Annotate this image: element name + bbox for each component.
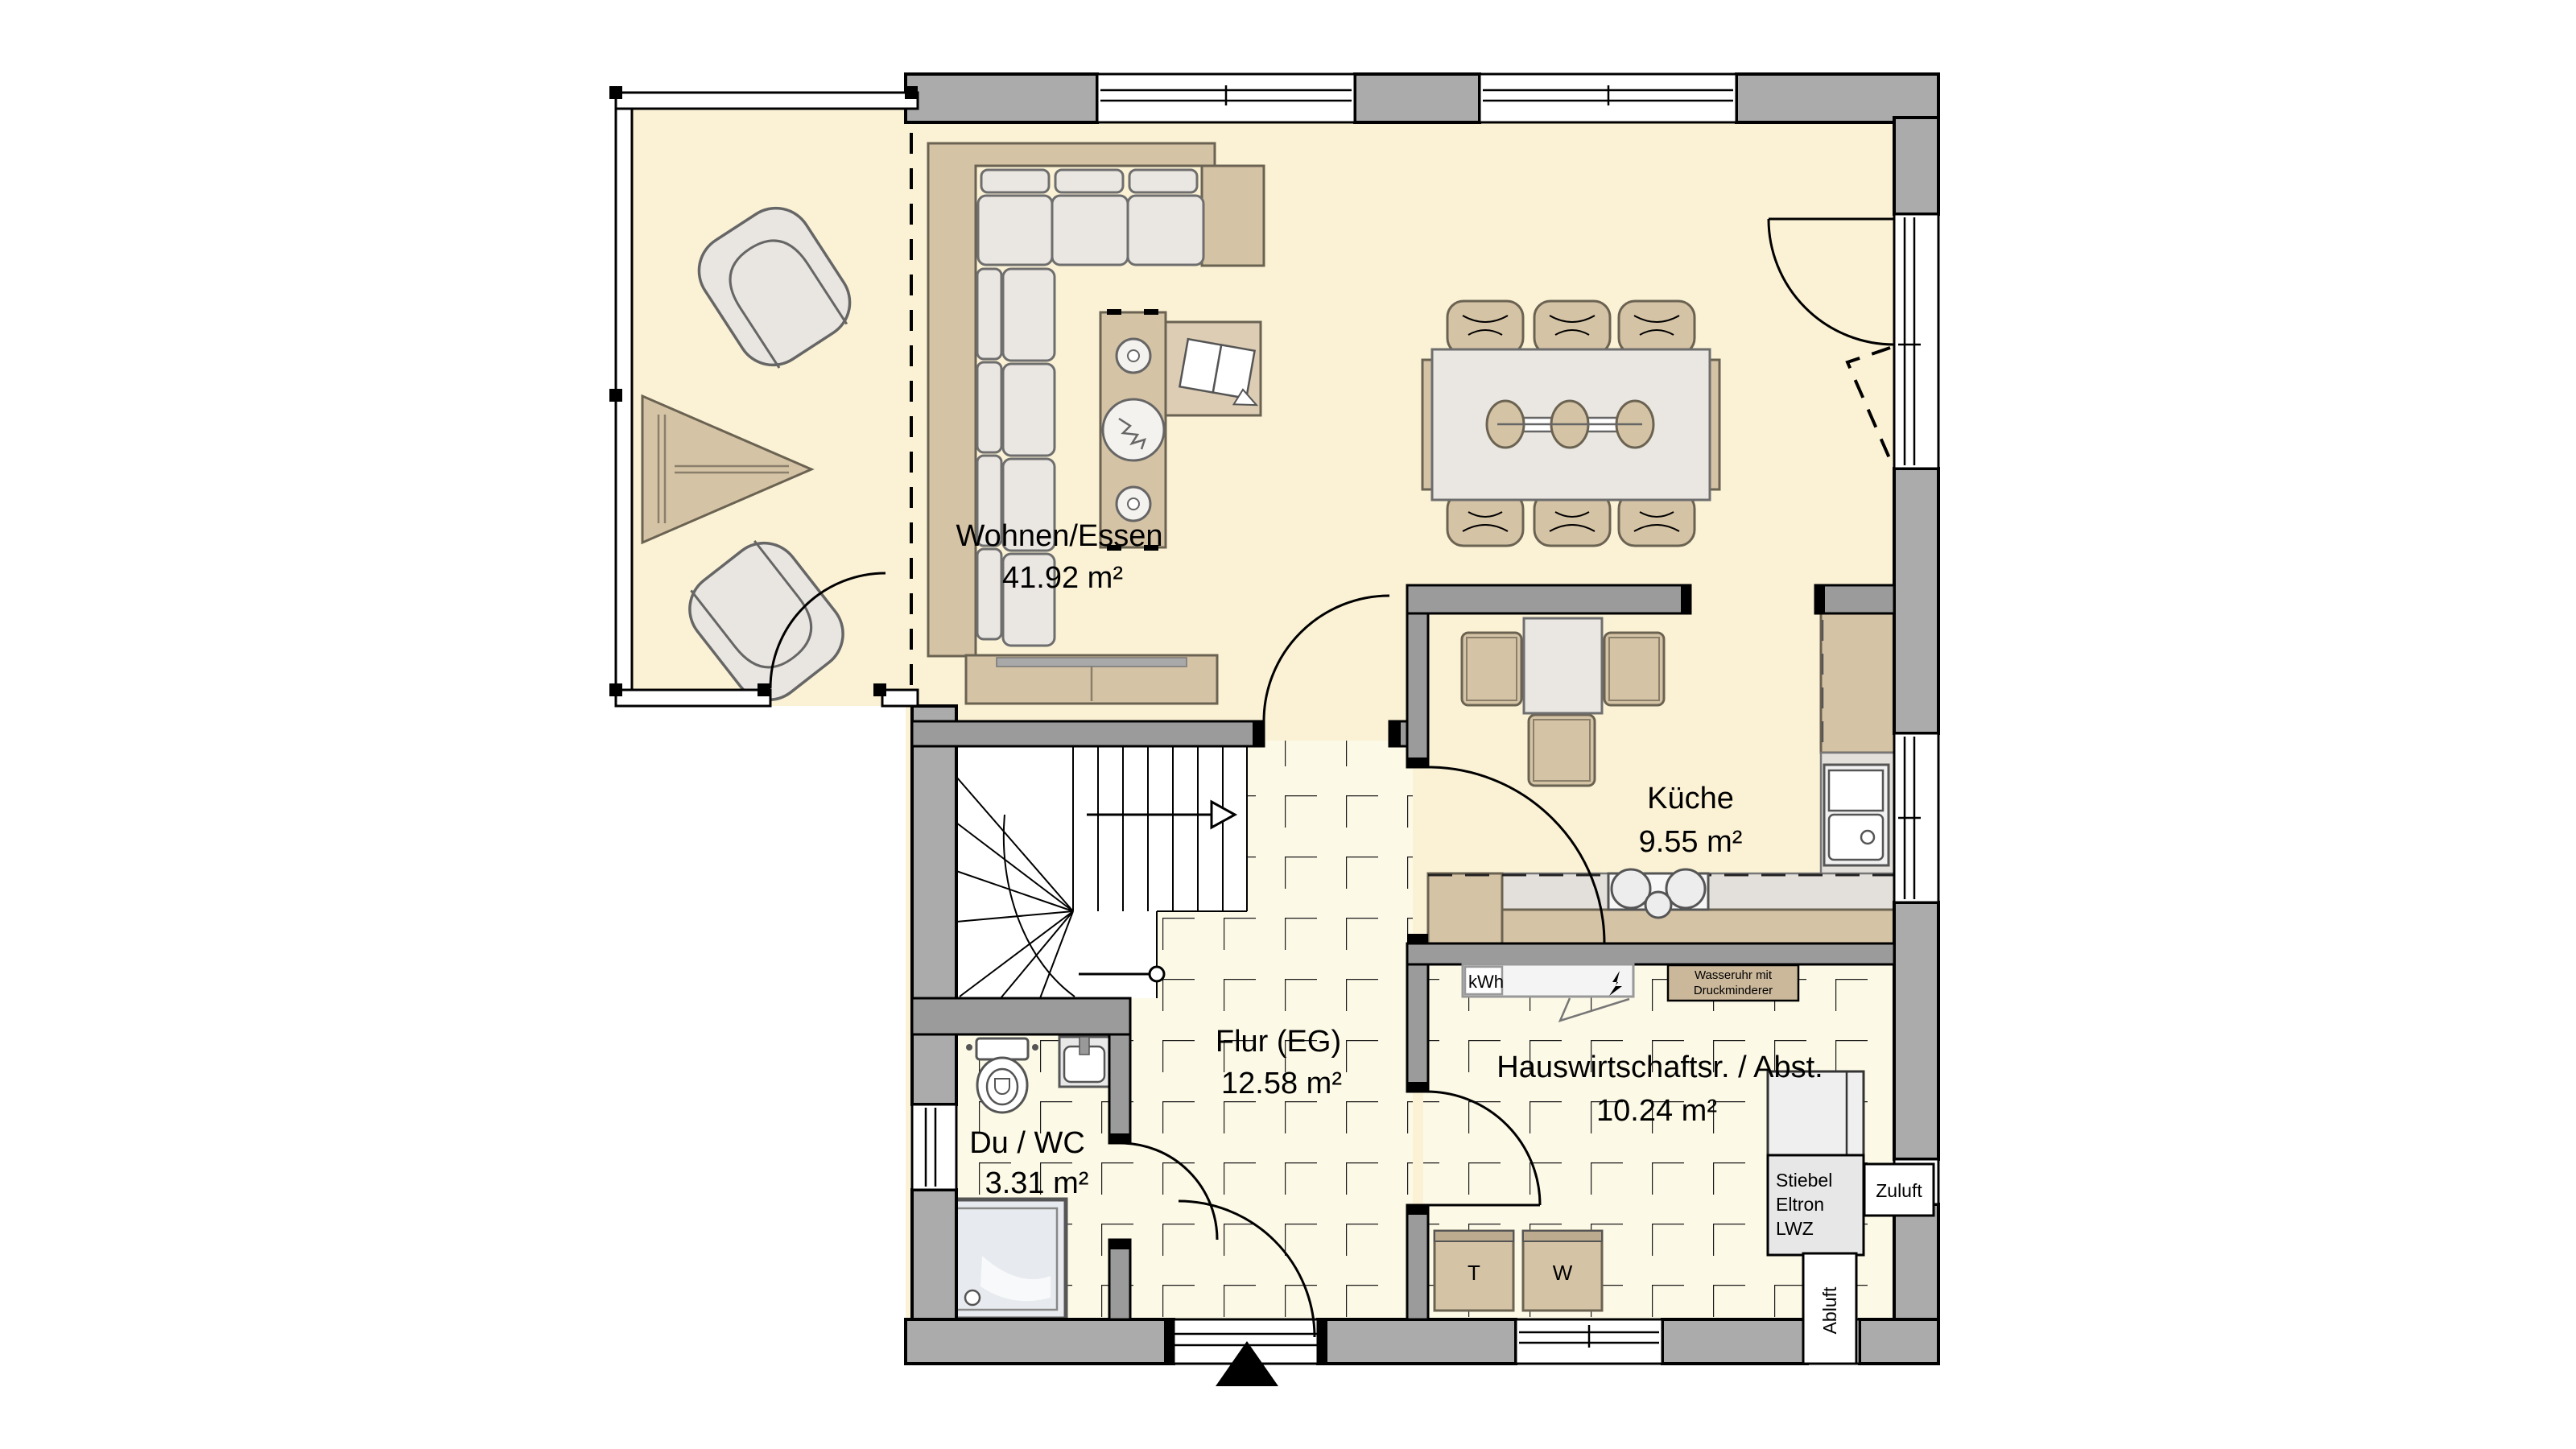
abluft-label: Abluft <box>1819 1286 1840 1334</box>
kitchen-chair <box>1529 715 1595 786</box>
sofa-back-cushion <box>977 269 1001 359</box>
room-label-flur: Flur (EG) <box>1216 1025 1341 1059</box>
floor-plan-canvas: kWh Wasseruhr mit Druckminderer Zuluft A… <box>0 0 2576 1449</box>
kitchen-chair <box>1604 633 1664 705</box>
kitchen-table <box>1524 618 1602 713</box>
sofa-seat <box>1003 269 1055 361</box>
sofa-seat <box>1052 196 1128 265</box>
dining-chair <box>1447 301 1523 354</box>
stiebel-label-2: Eltron <box>1776 1194 1824 1215</box>
floor-plan-page: kWh Wasseruhr mit Druckminderer Zuluft A… <box>0 0 2576 1449</box>
table-end-rail <box>1422 360 1432 489</box>
sofa-corner-seat <box>1202 166 1264 266</box>
room-area-kueche: 9.55 m² <box>1639 825 1743 859</box>
sofa-headrest <box>1055 170 1123 192</box>
abluft-duct: Abluft <box>1803 1253 1856 1364</box>
base-cabinet <box>1428 873 1502 943</box>
sideboard <box>966 655 1217 704</box>
zuluft-duct: Zuluft <box>1864 1164 1934 1216</box>
dining-chair <box>1534 301 1610 354</box>
room-area-duwc: 3.31 m² <box>985 1166 1089 1200</box>
tall-cabinet <box>1821 613 1894 753</box>
water-meter: Wasseruhr mit Druckminderer <box>1668 965 1798 1001</box>
stiebel-label-3: LWZ <box>1776 1218 1814 1239</box>
room-area-flur: 12.58 m² <box>1221 1067 1342 1100</box>
dryer-label: T <box>1468 1261 1480 1285</box>
room-label-kueche: Küche <box>1647 782 1734 815</box>
sofa-back-cushion <box>977 549 1001 639</box>
window-hwr-bottom <box>1516 1319 1662 1364</box>
sofa-back-cushion <box>977 362 1001 452</box>
burner-icon <box>1645 892 1671 918</box>
room-area-wohnen: 41.92 m² <box>1002 561 1123 595</box>
sofa-seat <box>1003 364 1055 456</box>
shower <box>947 1199 1066 1319</box>
sofa-headrest <box>981 170 1049 192</box>
side-table-with-book <box>1166 322 1265 415</box>
washer-label: W <box>1553 1261 1573 1285</box>
room-label-wohnen: Wohnen/Essen <box>956 519 1162 553</box>
handrail-post <box>1150 967 1164 981</box>
soundbar <box>997 658 1187 667</box>
kitchen-sink <box>1824 765 1889 865</box>
dining-set <box>1422 301 1719 546</box>
room-label-duwc: Du / WC <box>969 1126 1085 1160</box>
terrace-door-right <box>1894 214 1938 469</box>
window-duwc-left <box>912 1104 956 1190</box>
dining-chair <box>1619 301 1695 354</box>
bowl-icon <box>1103 399 1164 460</box>
wasseruhr-label-1: Wasseruhr mit <box>1695 968 1773 982</box>
room-label-hwr: Hauswirtschaftsr. / Abst. <box>1496 1051 1823 1084</box>
sofa-seat <box>1128 196 1203 265</box>
sofa-headrest <box>1129 170 1197 192</box>
zuluft-label: Zuluft <box>1876 1180 1922 1201</box>
stiebel-label-1: Stiebel <box>1776 1170 1832 1191</box>
window-kitchen-right <box>1894 733 1938 902</box>
kwh-label: kWh <box>1468 972 1504 992</box>
kitchen-chair <box>1462 633 1521 705</box>
window-top-right <box>1480 74 1736 122</box>
media-board <box>1100 309 1166 551</box>
cooktop <box>1608 869 1708 918</box>
sofa-seat <box>978 196 1052 265</box>
room-area-hwr: 10.24 m² <box>1596 1094 1717 1128</box>
table-end-rail <box>1710 360 1719 489</box>
window-top-left <box>1097 74 1355 122</box>
wasseruhr-label-2: Druckminderer <box>1694 984 1773 997</box>
